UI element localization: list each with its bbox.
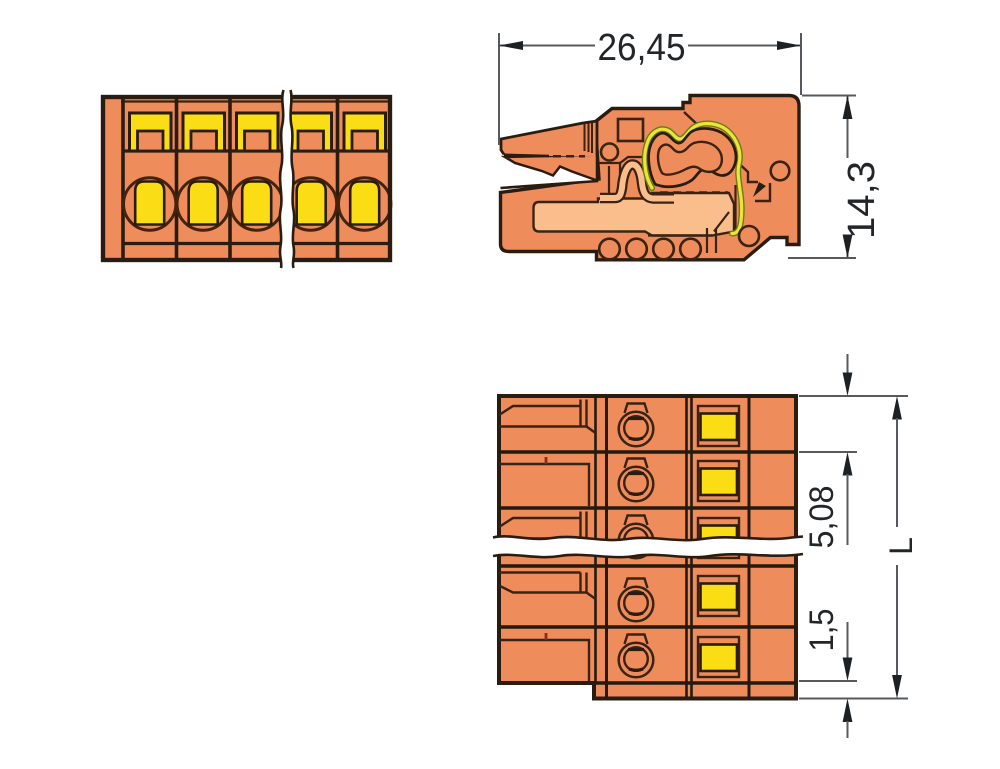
svg-text:14,3: 14,3: [841, 161, 883, 239]
svg-text:26,45: 26,45: [598, 27, 686, 69]
svg-text:5,08: 5,08: [803, 486, 841, 549]
svg-text:1,5: 1,5: [803, 609, 841, 652]
svg-text:L: L: [883, 537, 919, 555]
